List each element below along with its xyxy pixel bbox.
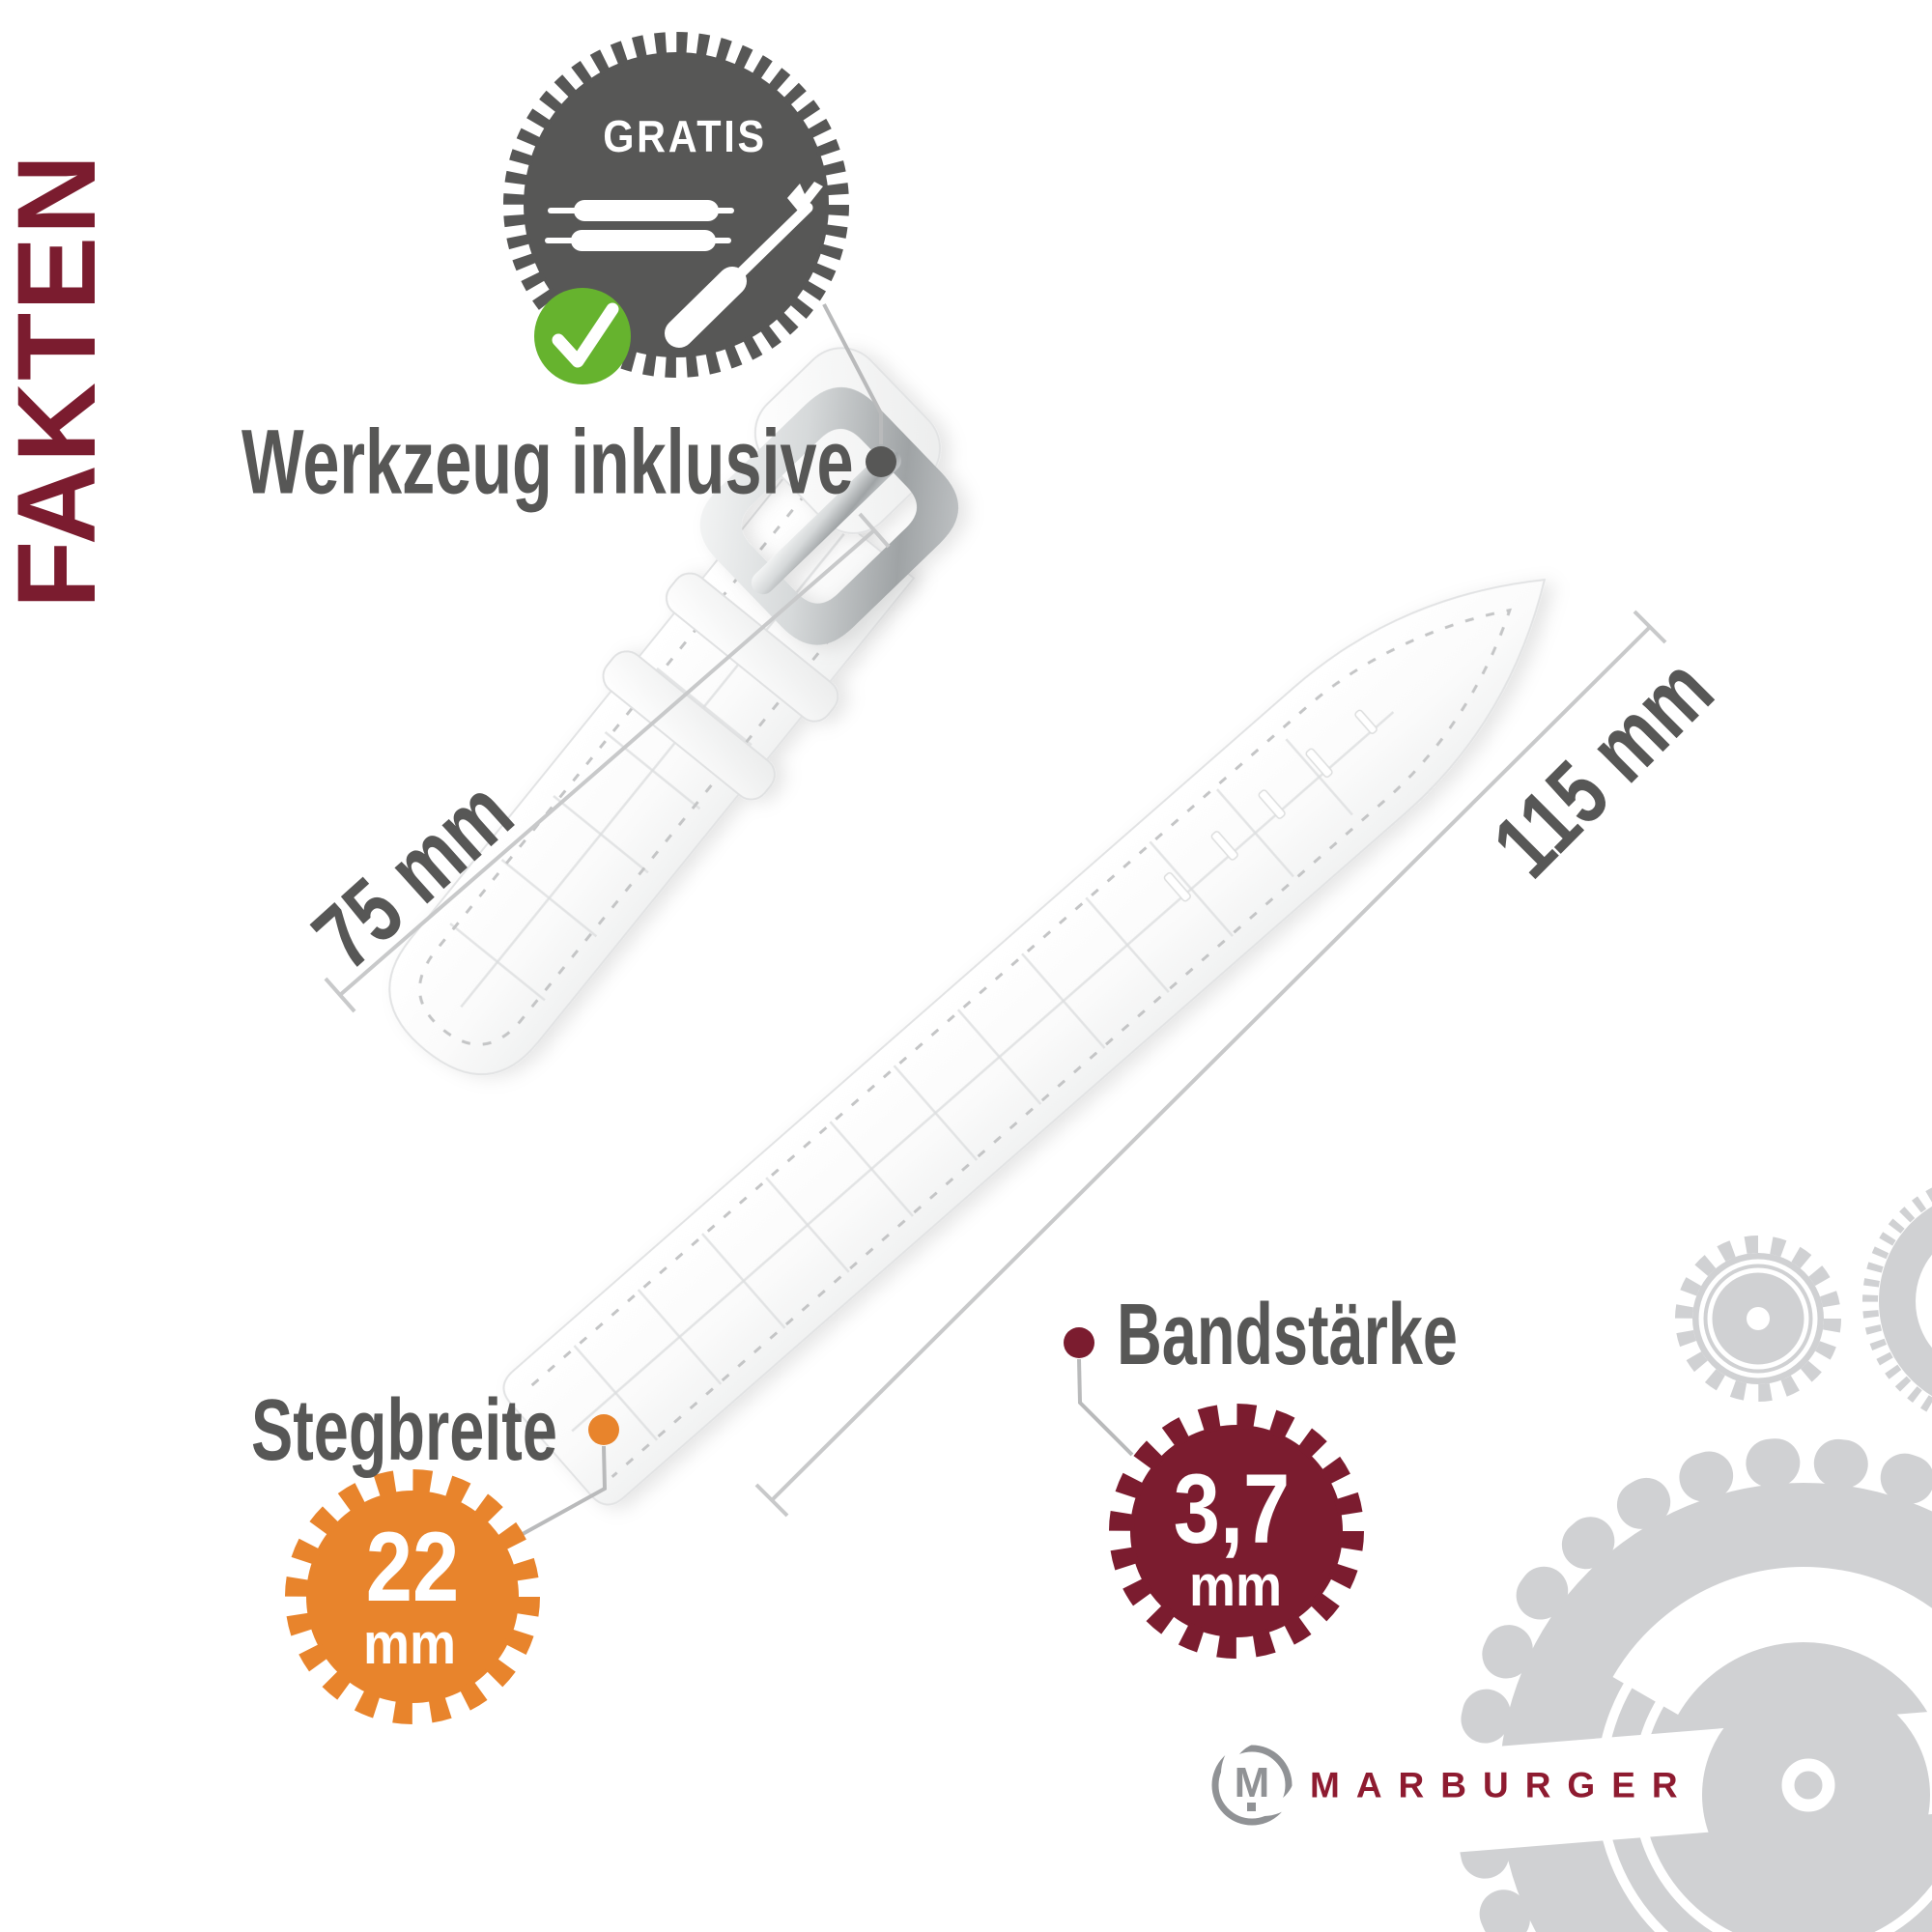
thickness-label: Bandstärke [1117, 1292, 1458, 1378]
brand-name: MARBURGER [1310, 1768, 1694, 1804]
thickness-value: 3,7 [1174, 1460, 1291, 1558]
tool-included-label: Werkzeug inklusive [241, 417, 854, 509]
check-icon [534, 288, 631, 384]
spring-bar-icon [551, 200, 731, 221]
brand-monogram: M [1235, 1762, 1270, 1804]
thickness-unit: mm [1189, 1557, 1282, 1615]
brand-monogram-square [1247, 1803, 1256, 1811]
artwork-layer [0, 0, 1932, 1932]
spring-bar-icon [548, 230, 728, 251]
side-title: FAKTEN [2, 153, 113, 609]
badge-title: GRATIS [603, 114, 767, 158]
lug-width-value: 22 [366, 1518, 459, 1616]
infographic-canvas: FAKTEN GRATIS Werkzeug inklusive 75 mm 1… [0, 0, 1932, 1932]
lug-width-unit: mm [363, 1615, 456, 1673]
gratis-badge [515, 43, 838, 384]
lug-width-label: Stegbreite [251, 1387, 557, 1474]
